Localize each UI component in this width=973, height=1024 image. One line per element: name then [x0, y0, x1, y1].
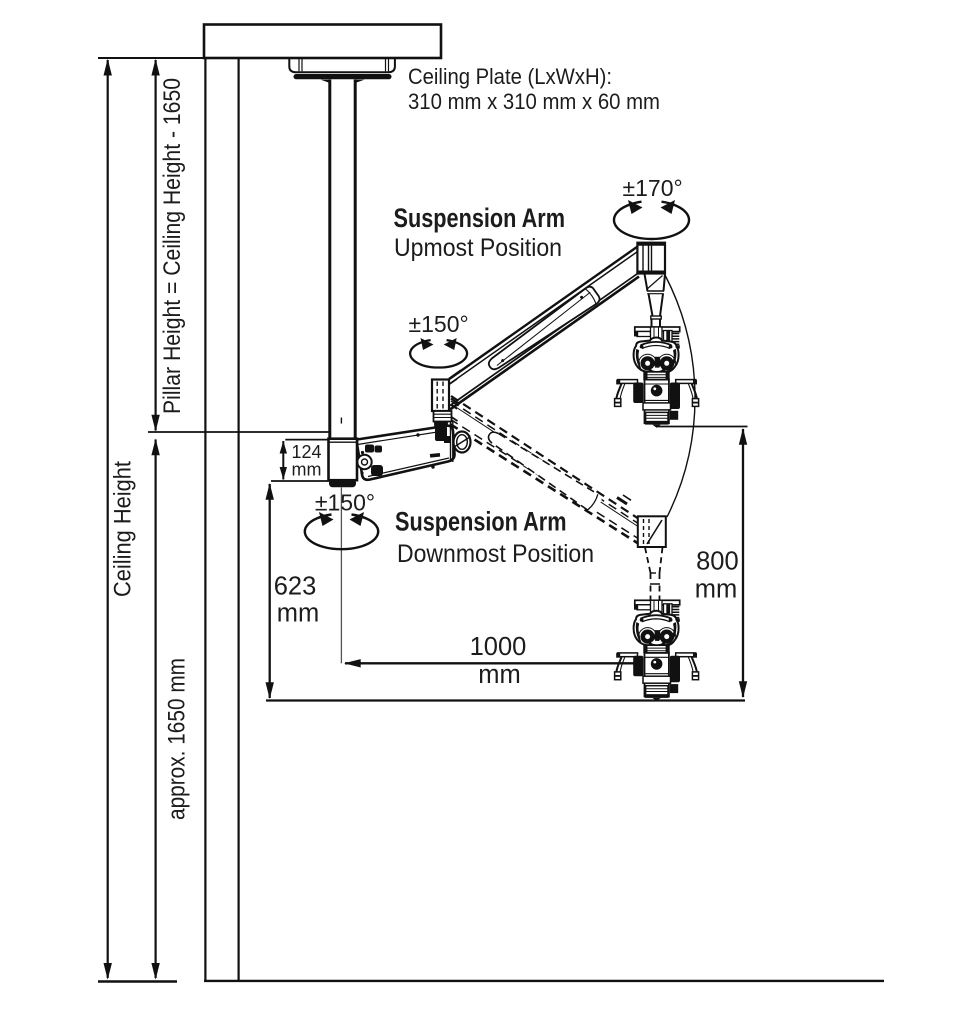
- svg-text:Pillar Height = Ceiling Height: Pillar Height = Ceiling Height - 1650: [159, 78, 186, 414]
- svg-text:mm: mm: [695, 576, 737, 604]
- svg-text:Ceiling Height: Ceiling Height: [110, 461, 137, 597]
- svg-text:1000: 1000: [470, 633, 527, 661]
- svg-text:mm: mm: [292, 460, 322, 480]
- svg-text:Suspension Arm: Suspension Arm: [395, 507, 567, 537]
- svg-text:623: 623: [274, 573, 317, 601]
- svg-text:mm: mm: [478, 661, 520, 689]
- svg-text:Ceiling Plate (LxWxH):: Ceiling Plate (LxWxH):: [408, 64, 612, 89]
- svg-text:±150°: ±150°: [315, 489, 375, 515]
- svg-text:310 mm x 310 mm x 60 mm: 310 mm x 310 mm x 60 mm: [408, 89, 660, 114]
- svg-text:Upmost Position: Upmost Position: [394, 234, 562, 262]
- svg-text:mm: mm: [277, 600, 319, 628]
- svg-text:±150°: ±150°: [408, 311, 468, 337]
- svg-text:±170°: ±170°: [622, 175, 682, 201]
- svg-text:Suspension Arm: Suspension Arm: [394, 203, 566, 233]
- svg-text:800: 800: [696, 548, 739, 576]
- svg-text:approx. 1650 mm: approx. 1650 mm: [164, 658, 191, 820]
- svg-text:Downmost Position: Downmost Position: [397, 540, 594, 568]
